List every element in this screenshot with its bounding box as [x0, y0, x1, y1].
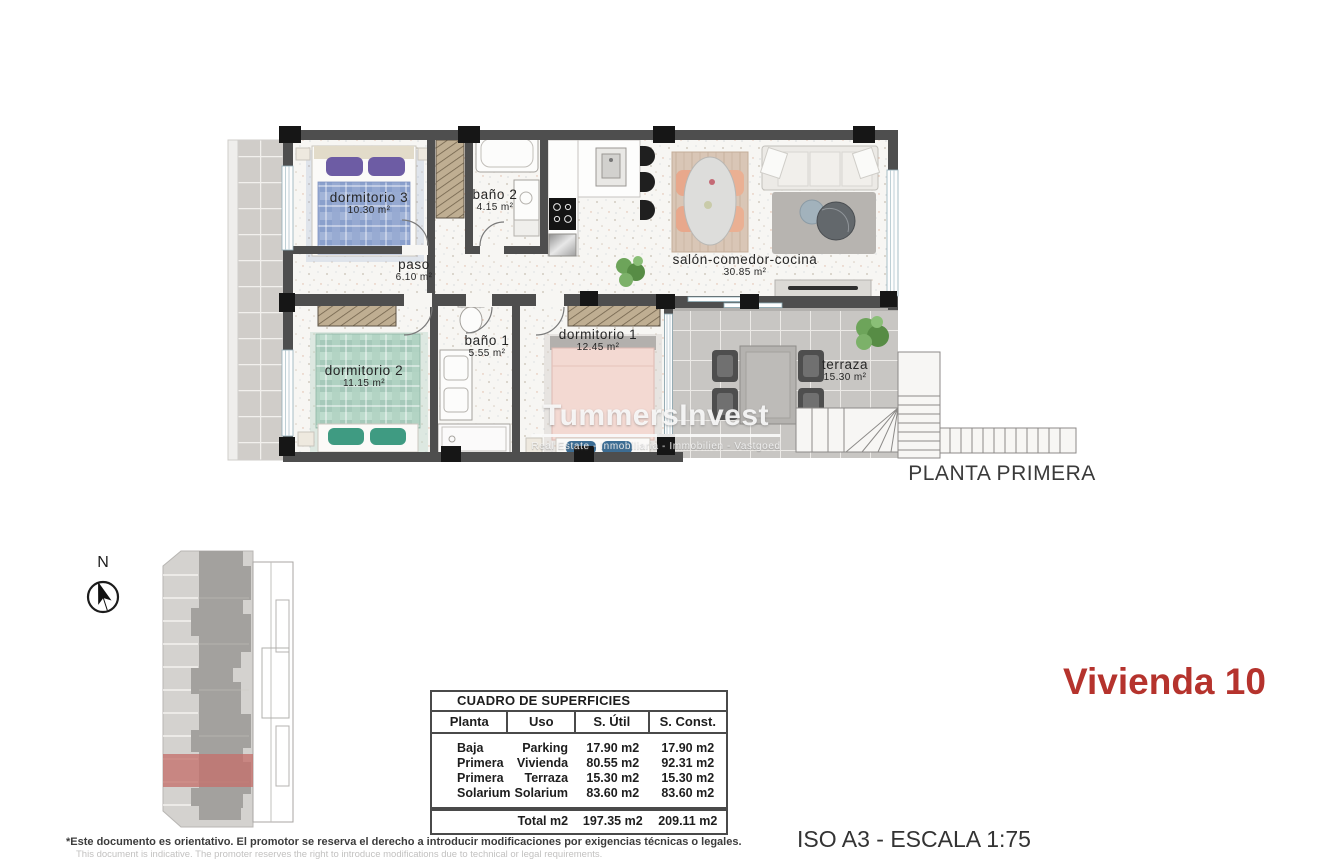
unit-title: Vivienda 10 [1063, 661, 1266, 703]
cell-planta: Primera [432, 756, 508, 771]
site-plan [163, 551, 293, 827]
table-row: Solarium Solarium 83.60 m2 83.60 m2 [432, 786, 726, 801]
col-header-s-util: S. Útil [576, 712, 650, 732]
plan-sheet: { "page": { "plan_title": "PLANTA PRIMER… [0, 0, 1320, 859]
surface-table-header: Planta Uso S. Útil S. Const. [432, 712, 726, 734]
wardrobe-dormitorio-3 [436, 140, 464, 218]
cell-s-util: 17.90 m2 [576, 741, 650, 756]
north-label: N [97, 554, 109, 572]
cell-s-util: 83.60 m2 [576, 786, 650, 801]
col-header-planta: Planta [432, 712, 508, 732]
cell-planta: Solarium [432, 786, 508, 801]
col-header-uso: Uso [508, 712, 576, 732]
table-total-row: Total m2 197.35 m2 209.11 m2 [432, 811, 726, 833]
surface-table-body: Baja Parking 17.90 m2 17.90 m2 Primera V… [432, 734, 726, 807]
coffee-table-area [772, 192, 876, 254]
cell-uso: Solarium [508, 786, 576, 801]
cell-s-util: 80.55 m2 [576, 756, 650, 771]
disclaimer-es: *Este documento es orientativo. El promo… [66, 836, 742, 848]
cell-s-const: 15.30 m2 [650, 771, 726, 786]
cell-planta: Primera [432, 771, 508, 786]
disclaimer-en: This document is indicative. The promote… [76, 849, 602, 860]
cooktop [549, 198, 576, 230]
total-s-const: 209.11 m2 [650, 814, 726, 829]
cell-s-util: 15.30 m2 [576, 771, 650, 786]
tv-console [775, 280, 871, 298]
cell-uso: Terraza [508, 771, 576, 786]
site-highlight-unit [163, 754, 253, 787]
table-row: Primera Terraza 15.30 m2 15.30 m2 [432, 771, 726, 786]
bed-dormitorio-3 [296, 146, 432, 262]
table-row: Primera Vivienda 80.55 m2 92.31 m2 [432, 756, 726, 771]
col-header-s-const: S. Const. [650, 712, 726, 732]
surface-table: CUADRO DE SUPERFICIES Planta Uso S. Útil… [430, 690, 728, 835]
dining-set [672, 152, 748, 252]
plan-title: PLANTA PRIMERA [908, 462, 1096, 486]
table-row: Baja Parking 17.90 m2 17.90 m2 [432, 741, 726, 756]
scale-note: ISO A3 - ESCALA 1:75 [797, 826, 1031, 853]
cell-planta: Baja [432, 741, 508, 756]
total-label: Total m2 [508, 814, 576, 829]
cell-uso: Parking [508, 741, 576, 756]
cell-s-const: 17.90 m2 [650, 741, 726, 756]
north-arrow-icon [88, 580, 118, 613]
cell-s-const: 83.60 m2 [650, 786, 726, 801]
surface-table-title: CUADRO DE SUPERFICIES [432, 692, 726, 712]
sofa [760, 146, 879, 190]
cell-s-const: 92.31 m2 [650, 756, 726, 771]
total-s-util: 197.35 m2 [576, 814, 650, 829]
exterior-walkway [228, 140, 283, 460]
cell-uso: Vivienda [508, 756, 576, 771]
